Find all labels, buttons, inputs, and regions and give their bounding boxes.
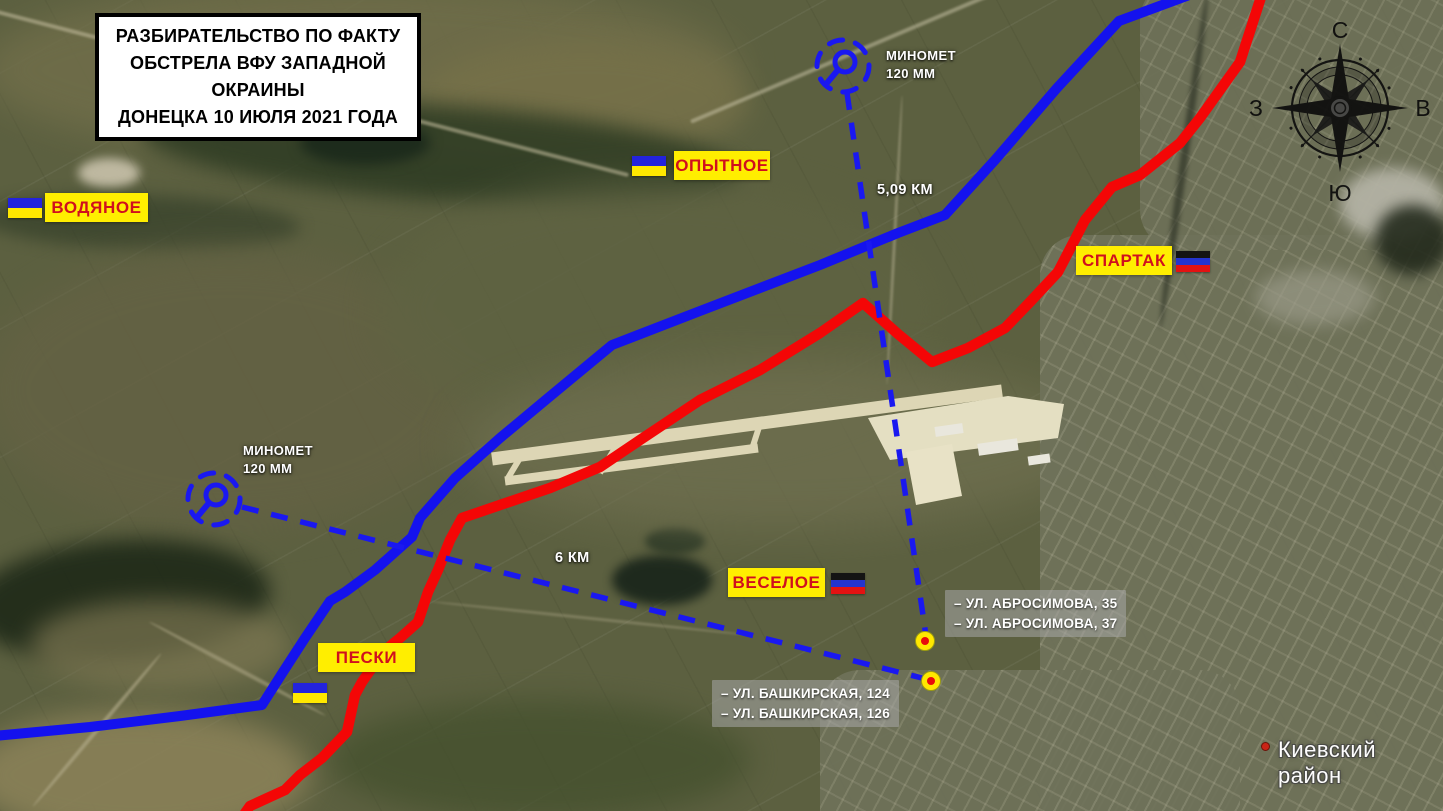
mortar-icon-2 [188, 473, 240, 525]
ukraine-flag-icon [293, 683, 327, 703]
impact-marker-1 [916, 632, 935, 651]
trajectory-1 [847, 93, 926, 636]
compass-east-label: В [1415, 95, 1430, 121]
address-line: – УЛ. АБРОСИМОВА, 35 [954, 594, 1117, 614]
settlement-label-spartak: СПАРТАК [1076, 246, 1172, 275]
district-pin-icon [1261, 742, 1270, 751]
settlement-label-vodyanoe: ВОДЯНОЕ [45, 193, 148, 222]
address-line: – УЛ. БАШКИРСКАЯ, 124 [721, 684, 890, 704]
investigation-title-box: РАЗБИРАТЕЛЬСТВО ПО ФАКТУ ОБСТРЕЛА ВФУ ЗА… [95, 13, 421, 141]
impact-marker-2 [922, 672, 941, 691]
mortar-weapon: МИНОМЕТ [886, 47, 956, 65]
distance-label-1: 5,09 КМ [877, 180, 933, 200]
compass-rose: С В Ю З [1249, 17, 1431, 206]
airport-runways [492, 391, 1064, 505]
dnr-flag-icon [831, 573, 865, 594]
impact-address-box-2: – УЛ. БАШКИРСКАЯ, 124 – УЛ. БАШКИРСКАЯ, … [712, 680, 899, 727]
map-canvas[interactable]: С В Ю З РАЗБИРАТЕЛЬСТВО ПО ФАКТУ ОБСТРЕЛ… [0, 0, 1443, 811]
title-line-1: РАЗБИРАТЕЛЬСТВО ПО ФАКТУ [103, 23, 413, 50]
title-line-2: ОБСТРЕЛА ВФУ ЗАПАДНОЙ ОКРАИНЫ [103, 50, 413, 104]
mortar-caliber: 120 ММ [886, 65, 956, 83]
ukraine-flag-icon [8, 198, 42, 218]
dnr-flag-icon [1176, 251, 1210, 272]
distance-label-2: 6 КМ [555, 548, 590, 568]
compass-north-label: С [1332, 17, 1349, 43]
settlement-label-opytnoe: ОПЫТНОЕ [674, 151, 770, 180]
settlement-label-peski: ПЕСКИ [318, 643, 415, 672]
mortar-caliber: 120 ММ [243, 460, 313, 478]
ukraine-flag-icon [632, 156, 666, 176]
mortar-note-1: МИНОМЕТ 120 ММ [886, 47, 956, 83]
title-line-3: ДОНЕЦКА 10 ИЮЛЯ 2021 ГОДА [103, 104, 413, 131]
address-line: – УЛ. АБРОСИМОВА, 37 [954, 614, 1117, 634]
mortar-weapon: МИНОМЕТ [243, 442, 313, 460]
mortar-note-2: МИНОМЕТ 120 ММ [243, 442, 313, 478]
impact-address-box-1: – УЛ. АБРОСИМОВА, 35 – УЛ. АБРОСИМОВА, 3… [945, 590, 1126, 637]
district-label: Киевский район [1278, 737, 1443, 789]
address-line: – УЛ. БАШКИРСКАЯ, 126 [721, 704, 890, 724]
settlement-label-veseloe: ВЕСЕЛОЕ [728, 568, 825, 597]
compass-south-label: Ю [1328, 180, 1351, 206]
mortar-icon-1 [817, 40, 869, 92]
compass-west-label: З [1249, 95, 1263, 121]
